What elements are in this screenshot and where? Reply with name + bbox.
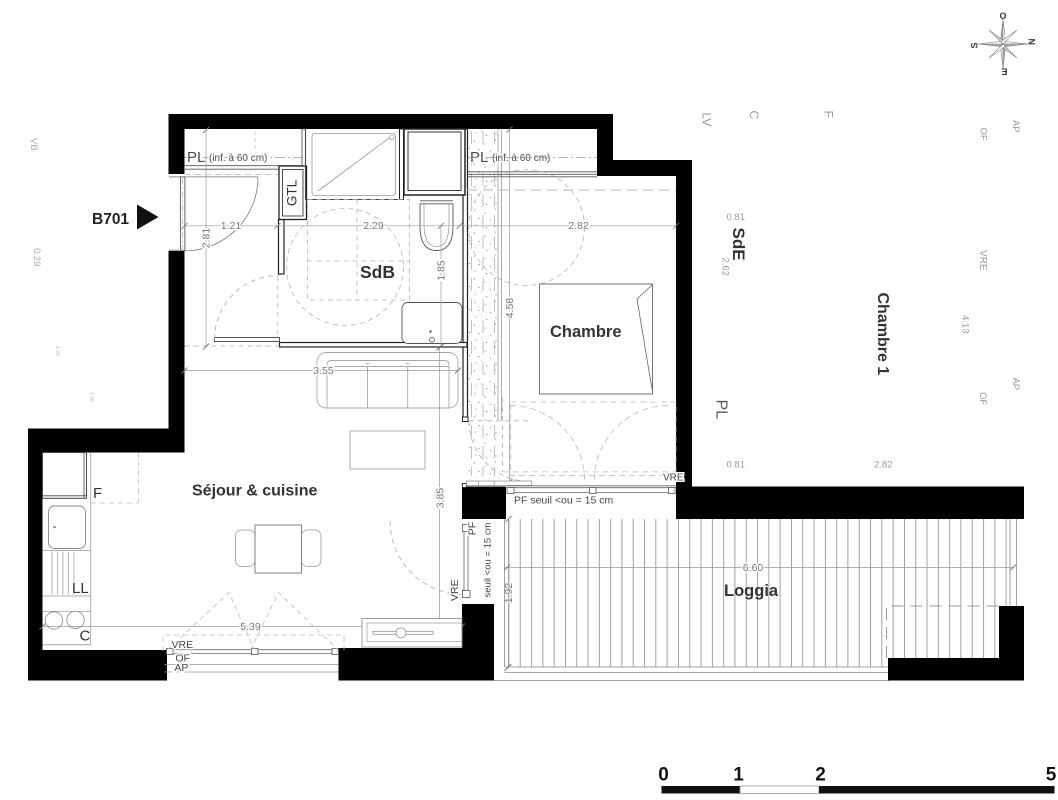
svg-text:0: 0: [658, 765, 669, 786]
svg-text:B701: B701: [92, 211, 129, 228]
svg-text:PL: PL: [187, 149, 205, 166]
svg-text:PF seuil <ou = 15 cm: PF seuil <ou = 15 cm: [514, 495, 613, 507]
svg-text:5.39: 5.39: [240, 621, 261, 633]
svg-text:VRE: VRE: [449, 579, 461, 601]
svg-text:0.81: 0.81: [727, 460, 746, 471]
svg-text:1.48: 1.48: [54, 346, 60, 356]
svg-text:1.45: 1.45: [88, 392, 94, 402]
svg-text:Chambre 1: Chambre 1: [874, 293, 891, 376]
svg-text:2: 2: [815, 765, 826, 786]
svg-text:OF: OF: [977, 392, 988, 405]
svg-text:PF: PF: [467, 522, 479, 535]
svg-text:AP: AP: [1010, 120, 1021, 133]
svg-text:OF: OF: [978, 128, 989, 141]
svg-text:1.85: 1.85: [436, 260, 448, 281]
svg-text:AP: AP: [174, 662, 188, 674]
svg-text:2.62: 2.62: [720, 258, 731, 277]
svg-text:0.81: 0.81: [727, 212, 746, 223]
svg-text:1.21: 1.21: [221, 220, 242, 232]
svg-text:6.60: 6.60: [743, 562, 764, 574]
svg-text:Séjour & cuisine: Séjour & cuisine: [192, 483, 317, 500]
svg-text:SdE: SdE: [729, 228, 748, 261]
svg-text:(inf. à 60 cm): (inf. à 60 cm): [492, 153, 550, 164]
svg-text:AP: AP: [1010, 378, 1021, 391]
svg-text:GTL: GTL: [285, 179, 300, 206]
svg-text:C: C: [747, 111, 761, 120]
svg-text:F: F: [93, 485, 102, 502]
svg-text:(inf. à 60 cm): (inf. à 60 cm): [209, 153, 267, 164]
svg-text:2.82: 2.82: [568, 220, 589, 232]
svg-text:Chambre: Chambre: [550, 323, 622, 341]
svg-text:F: F: [822, 111, 836, 118]
svg-text:2.29: 2.29: [363, 220, 384, 232]
svg-text:E: E: [1001, 67, 1007, 77]
svg-text:LL: LL: [72, 580, 89, 597]
svg-text:VRE: VRE: [663, 473, 684, 484]
svg-text:0.29: 0.29: [31, 248, 42, 267]
svg-text:4.13: 4.13: [960, 315, 971, 334]
svg-text:PL: PL: [713, 400, 730, 420]
svg-text:seuil <ou = 15 cm: seuil <ou = 15 cm: [483, 522, 494, 597]
svg-text:2.81: 2.81: [201, 228, 213, 249]
svg-text:N: N: [1027, 39, 1037, 46]
svg-text:4.58: 4.58: [504, 298, 516, 319]
svg-text:O: O: [1000, 11, 1007, 21]
svg-text:VRE: VRE: [172, 639, 194, 651]
svg-text:3.85: 3.85: [435, 488, 447, 509]
svg-text:S: S: [970, 42, 980, 48]
svg-text:VRE: VRE: [977, 250, 988, 271]
svg-text:1: 1: [733, 765, 744, 786]
svg-text:VB: VB: [28, 138, 39, 151]
svg-text:Loggia: Loggia: [724, 582, 779, 600]
svg-text:C: C: [80, 628, 91, 645]
svg-text:5: 5: [1046, 765, 1057, 786]
svg-text:2.82: 2.82: [874, 460, 893, 471]
svg-text:3.55: 3.55: [313, 365, 334, 377]
svg-text:LV: LV: [700, 113, 714, 127]
svg-text:SdB: SdB: [360, 262, 395, 282]
